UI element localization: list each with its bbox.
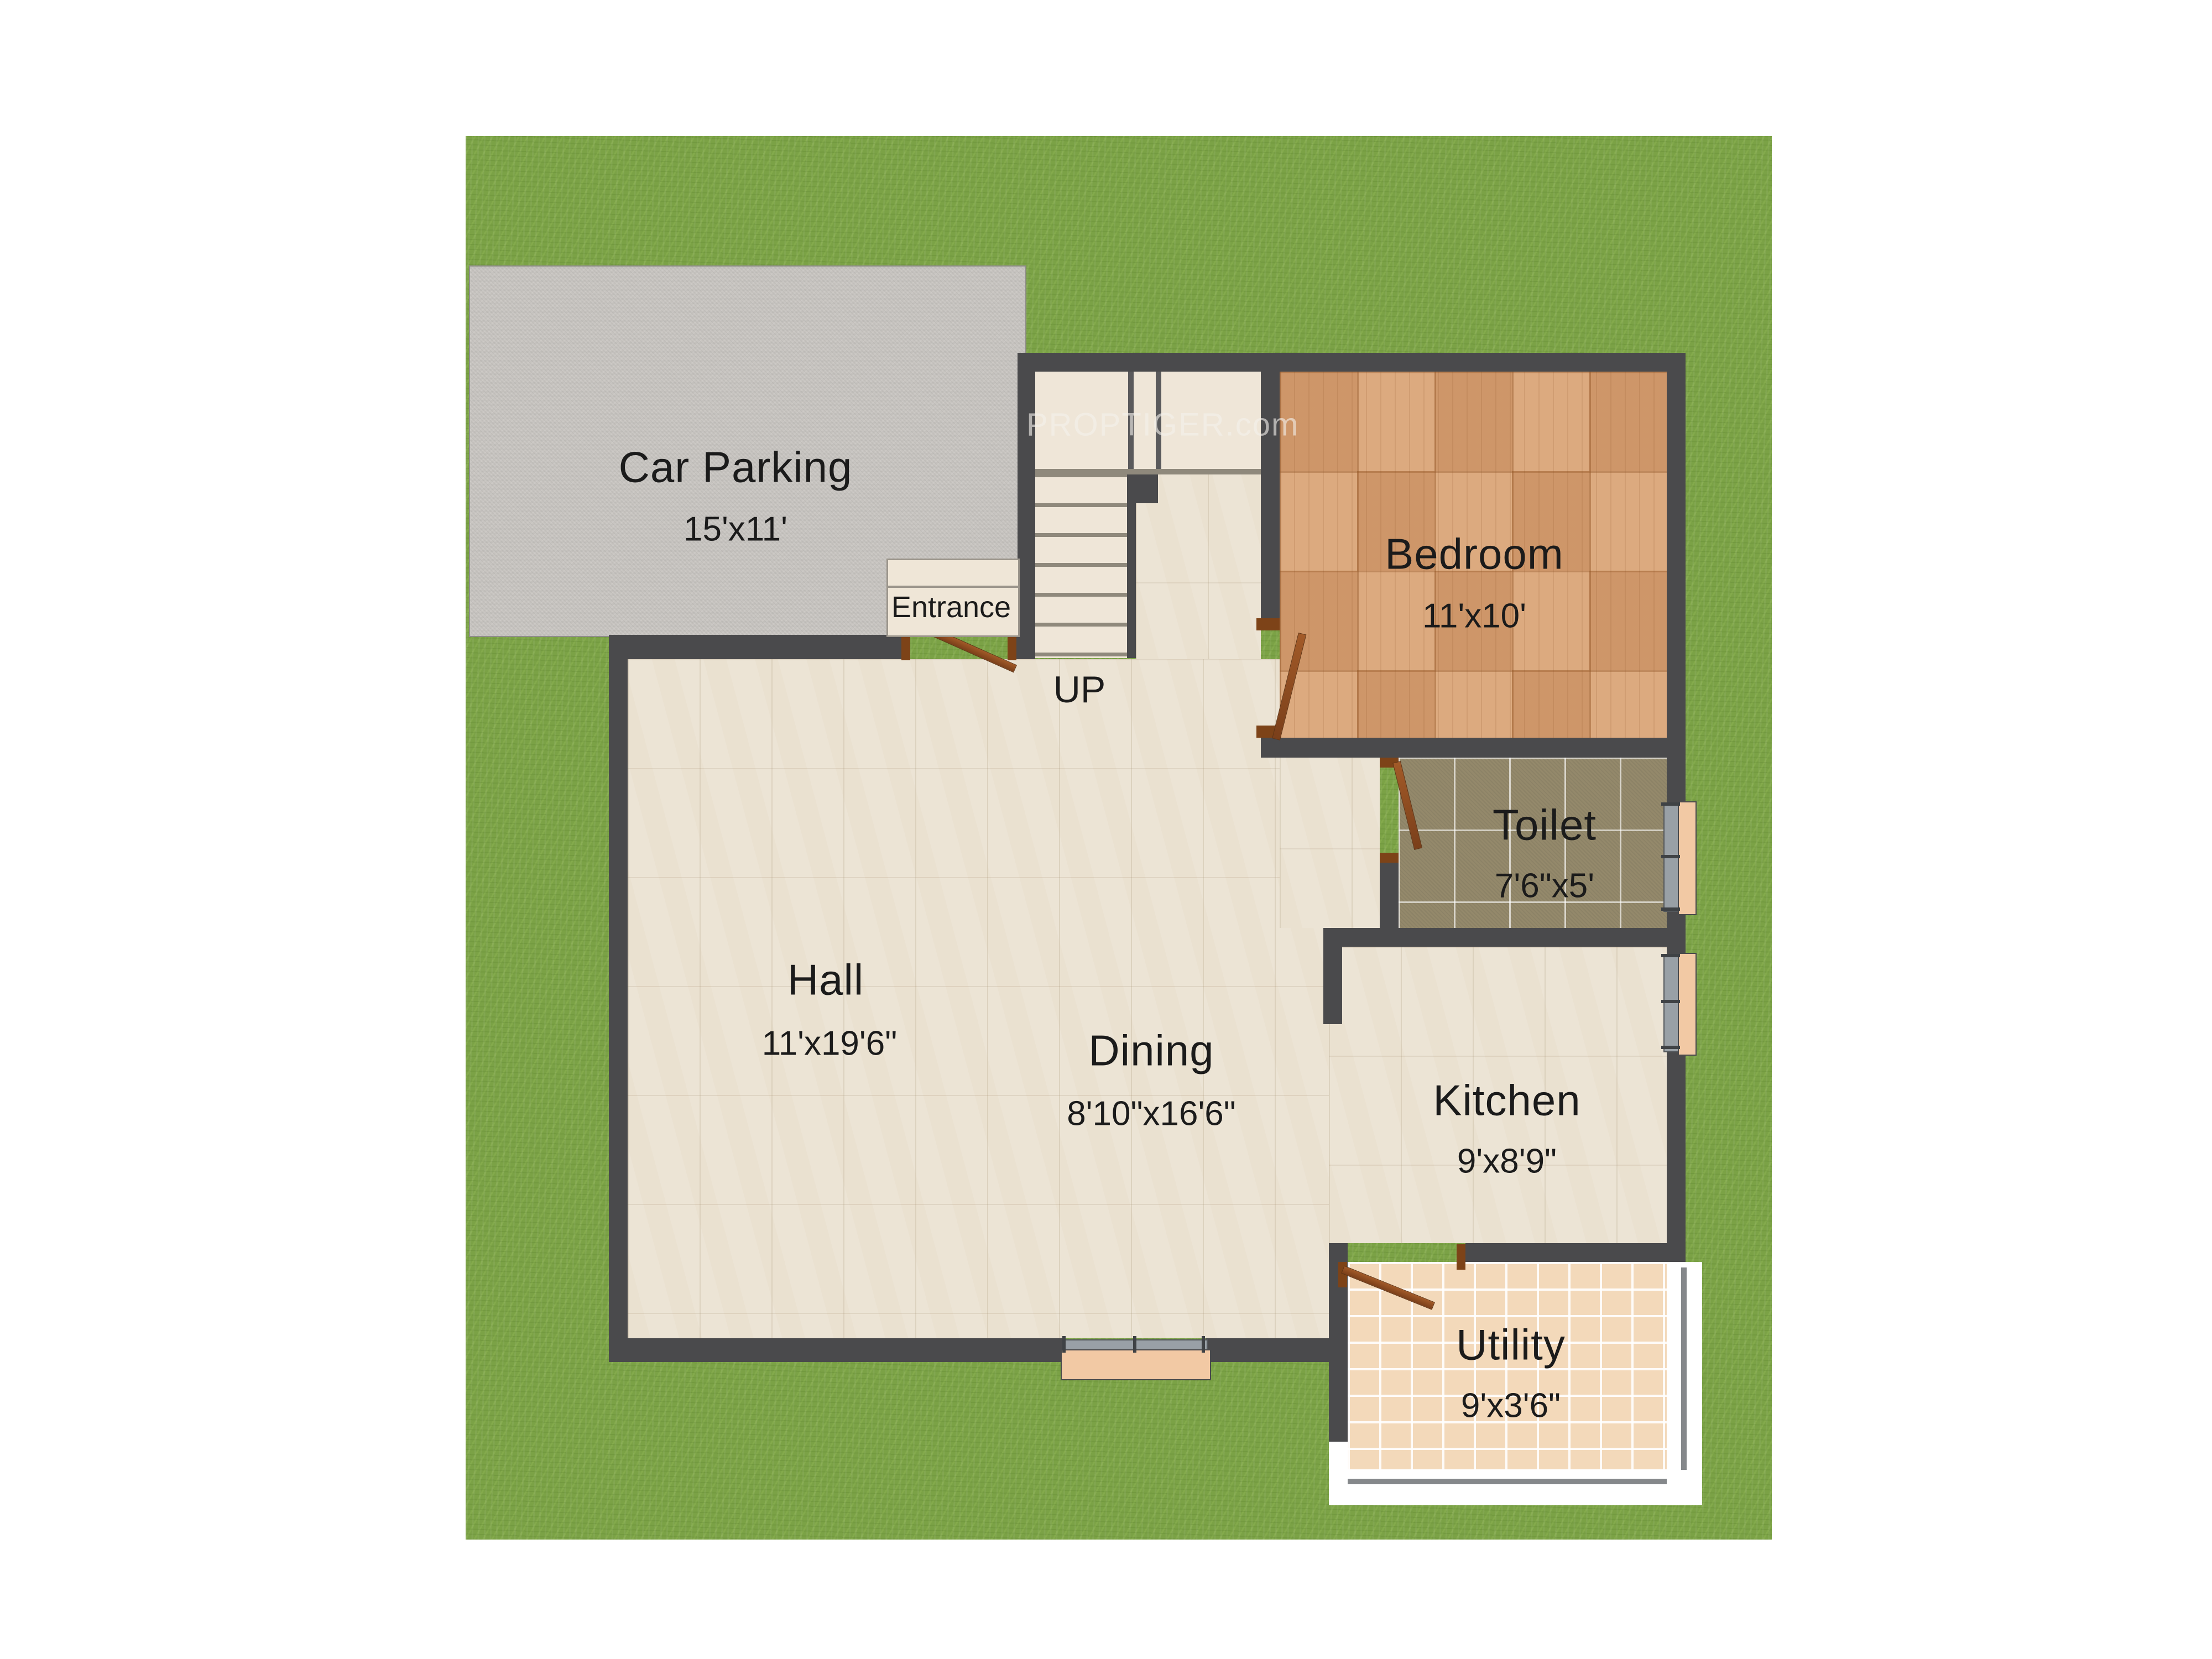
stair-steps — [1035, 473, 1127, 658]
kitchen-window — [1678, 953, 1697, 1056]
car-parking-dims: 15'x11' — [684, 510, 787, 549]
utility-label: Utility — [1456, 1320, 1566, 1370]
kitchen-dims: 9'x8'9" — [1457, 1142, 1557, 1181]
dining-label: Dining — [1088, 1026, 1214, 1076]
toilet-window-tick — [1661, 802, 1680, 806]
stair-divider-stub — [1136, 473, 1158, 503]
entrance-door-jamb — [901, 634, 910, 660]
entrance-label: Entrance — [891, 590, 1011, 624]
utility-door-jamb — [1457, 1244, 1465, 1270]
landing-edge — [1035, 469, 1261, 474]
wall-bedroom-bottom — [1261, 738, 1686, 758]
wall-entrance-right-stub — [1016, 635, 1035, 659]
hall-dims: 11'x19'6" — [762, 1024, 898, 1063]
hall-label: Hall — [787, 955, 864, 1005]
toilet-window-tick — [1661, 855, 1680, 858]
bedroom-dims: 11'x10' — [1422, 597, 1526, 636]
toilet-door-jamb — [1380, 853, 1399, 863]
wall-kitchen-bottom — [1465, 1243, 1686, 1262]
kitchen-window-tick — [1661, 1000, 1680, 1003]
utility-frame-line-bottom — [1348, 1479, 1667, 1484]
stair-divider-wall — [1127, 473, 1136, 658]
utility-dims: 9'x3'6" — [1461, 1386, 1561, 1426]
entrance-door-jamb — [1008, 634, 1016, 660]
floor-plan-canvas: Car Parking 15'x11' Hall 11'x19'6" Dinin… — [0, 0, 2212, 1659]
wall-hall-bottom-right — [1206, 1338, 1348, 1362]
up-label: UP — [1053, 668, 1105, 711]
wall-toilet-left — [1380, 863, 1399, 928]
toilet-window — [1678, 801, 1697, 915]
kitchen-label: Kitchen — [1433, 1076, 1580, 1126]
wall-kitchen-stub — [1323, 947, 1342, 1024]
wall-hall-left — [609, 635, 628, 1362]
wall-hall-bottom-left — [609, 1338, 1064, 1362]
utility-frame-line-right — [1681, 1267, 1687, 1470]
entrance-porch-step-line — [888, 586, 1018, 588]
kitchen-window-tick — [1661, 954, 1680, 957]
wall-hall-top — [609, 635, 901, 659]
watermark: PROPTIGER.com — [1026, 406, 1299, 444]
wall-toilet-bottom — [1323, 928, 1686, 947]
bedroom-door-jamb — [1256, 618, 1280, 630]
hall-dining-floor — [628, 659, 1329, 1338]
dining-window-tick — [1133, 1336, 1136, 1353]
toilet-window-tick — [1661, 907, 1680, 911]
dining-window-tick — [1062, 1336, 1066, 1353]
bedroom-label: Bedroom — [1385, 529, 1564, 580]
dining-window-tick — [1202, 1336, 1205, 1353]
dining-dims: 8'10"x16'6" — [1067, 1094, 1236, 1134]
toilet-dims: 7'6"x5' — [1495, 867, 1594, 906]
wall-bedroom-right — [1667, 353, 1686, 758]
toilet-label: Toilet — [1493, 800, 1597, 851]
kitchen-window-tick — [1661, 1046, 1680, 1049]
wall-stairwell-left — [1018, 353, 1035, 659]
car-parking-label: Car Parking — [619, 442, 853, 493]
dining-window — [1061, 1349, 1211, 1380]
wall-top — [1018, 353, 1686, 372]
